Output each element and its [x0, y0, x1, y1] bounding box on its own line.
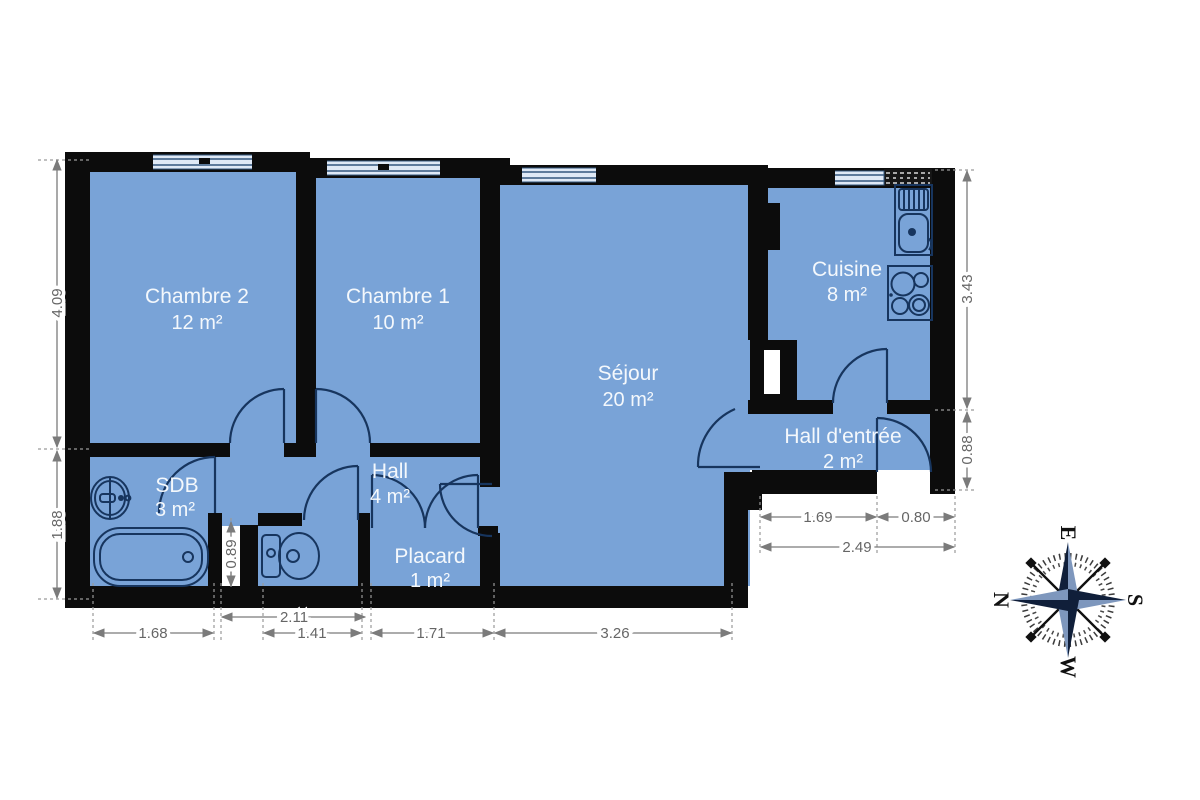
window-sejour — [515, 165, 606, 184]
compass-bottom-letter: W — [1056, 656, 1081, 678]
compass-top-letter: E — [1056, 526, 1081, 541]
dim-sejour-width: 3.26 — [600, 625, 629, 642]
label-sejour: Séjour — [598, 362, 659, 385]
dim-duct-opening: 0.89 — [223, 539, 240, 568]
dim-right-lower: 0.88 — [959, 435, 976, 464]
label-sdb: SDB — [155, 474, 198, 497]
area-chambre2: 12 m² — [171, 312, 222, 334]
hatched-wall — [884, 169, 932, 186]
compass-star — [1010, 542, 1126, 658]
area-hall: 4 m² — [370, 486, 410, 508]
compass-left-letter: N — [989, 592, 1014, 608]
label-hall-entree: Hall d'entrée — [784, 425, 901, 448]
dim-bath-width: 1.68 — [138, 625, 167, 642]
window-cuisine — [828, 168, 884, 187]
window-chambre1 — [320, 158, 447, 177]
label-chambre1: Chambre 1 — [346, 285, 450, 308]
label-cuisine: Cuisine — [812, 258, 882, 281]
wall-niche — [764, 350, 780, 394]
window-chambre2 — [146, 152, 259, 171]
floor-cuisine-doorway — [833, 400, 887, 414]
dim-placard-width: 1.71 — [416, 625, 445, 642]
dim-wc-zone-width: 2.11 — [280, 609, 308, 626]
compass-rose-icon: E S W N — [989, 526, 1148, 678]
apartment-floorplan: Chambre 2 12 m² Chambre 1 10 m² Séjour 2… — [0, 0, 1200, 800]
dim-left-lower: 1.88 — [49, 510, 66, 539]
dim-entry-total: 2.49 — [842, 539, 871, 556]
dim-right-upper: 3.43 — [959, 274, 976, 303]
area-sejour: 20 m² — [602, 389, 653, 411]
dim-left-upper: 4.09 — [49, 288, 66, 317]
compass-right-letter: S — [1123, 594, 1148, 606]
dim-entry-left: 1.69 — [803, 509, 832, 526]
area-cuisine: 8 m² — [827, 284, 867, 306]
dim-entry-door: 0.80 — [901, 509, 930, 526]
area-chambre1: 10 m² — [372, 312, 423, 334]
label-placard: Placard — [394, 545, 465, 568]
label-chambre2: Chambre 2 — [145, 285, 249, 308]
area-sdb: 3 m² — [155, 499, 195, 521]
area-hall-entree: 2 m² — [823, 451, 863, 473]
floorplan-page: Chambre 2 12 m² Chambre 1 10 m² Séjour 2… — [0, 0, 1200, 800]
area-placard: 1 m² — [410, 570, 450, 592]
label-hall: Hall — [372, 460, 408, 483]
dim-wc-width: 1.41 — [297, 625, 326, 642]
